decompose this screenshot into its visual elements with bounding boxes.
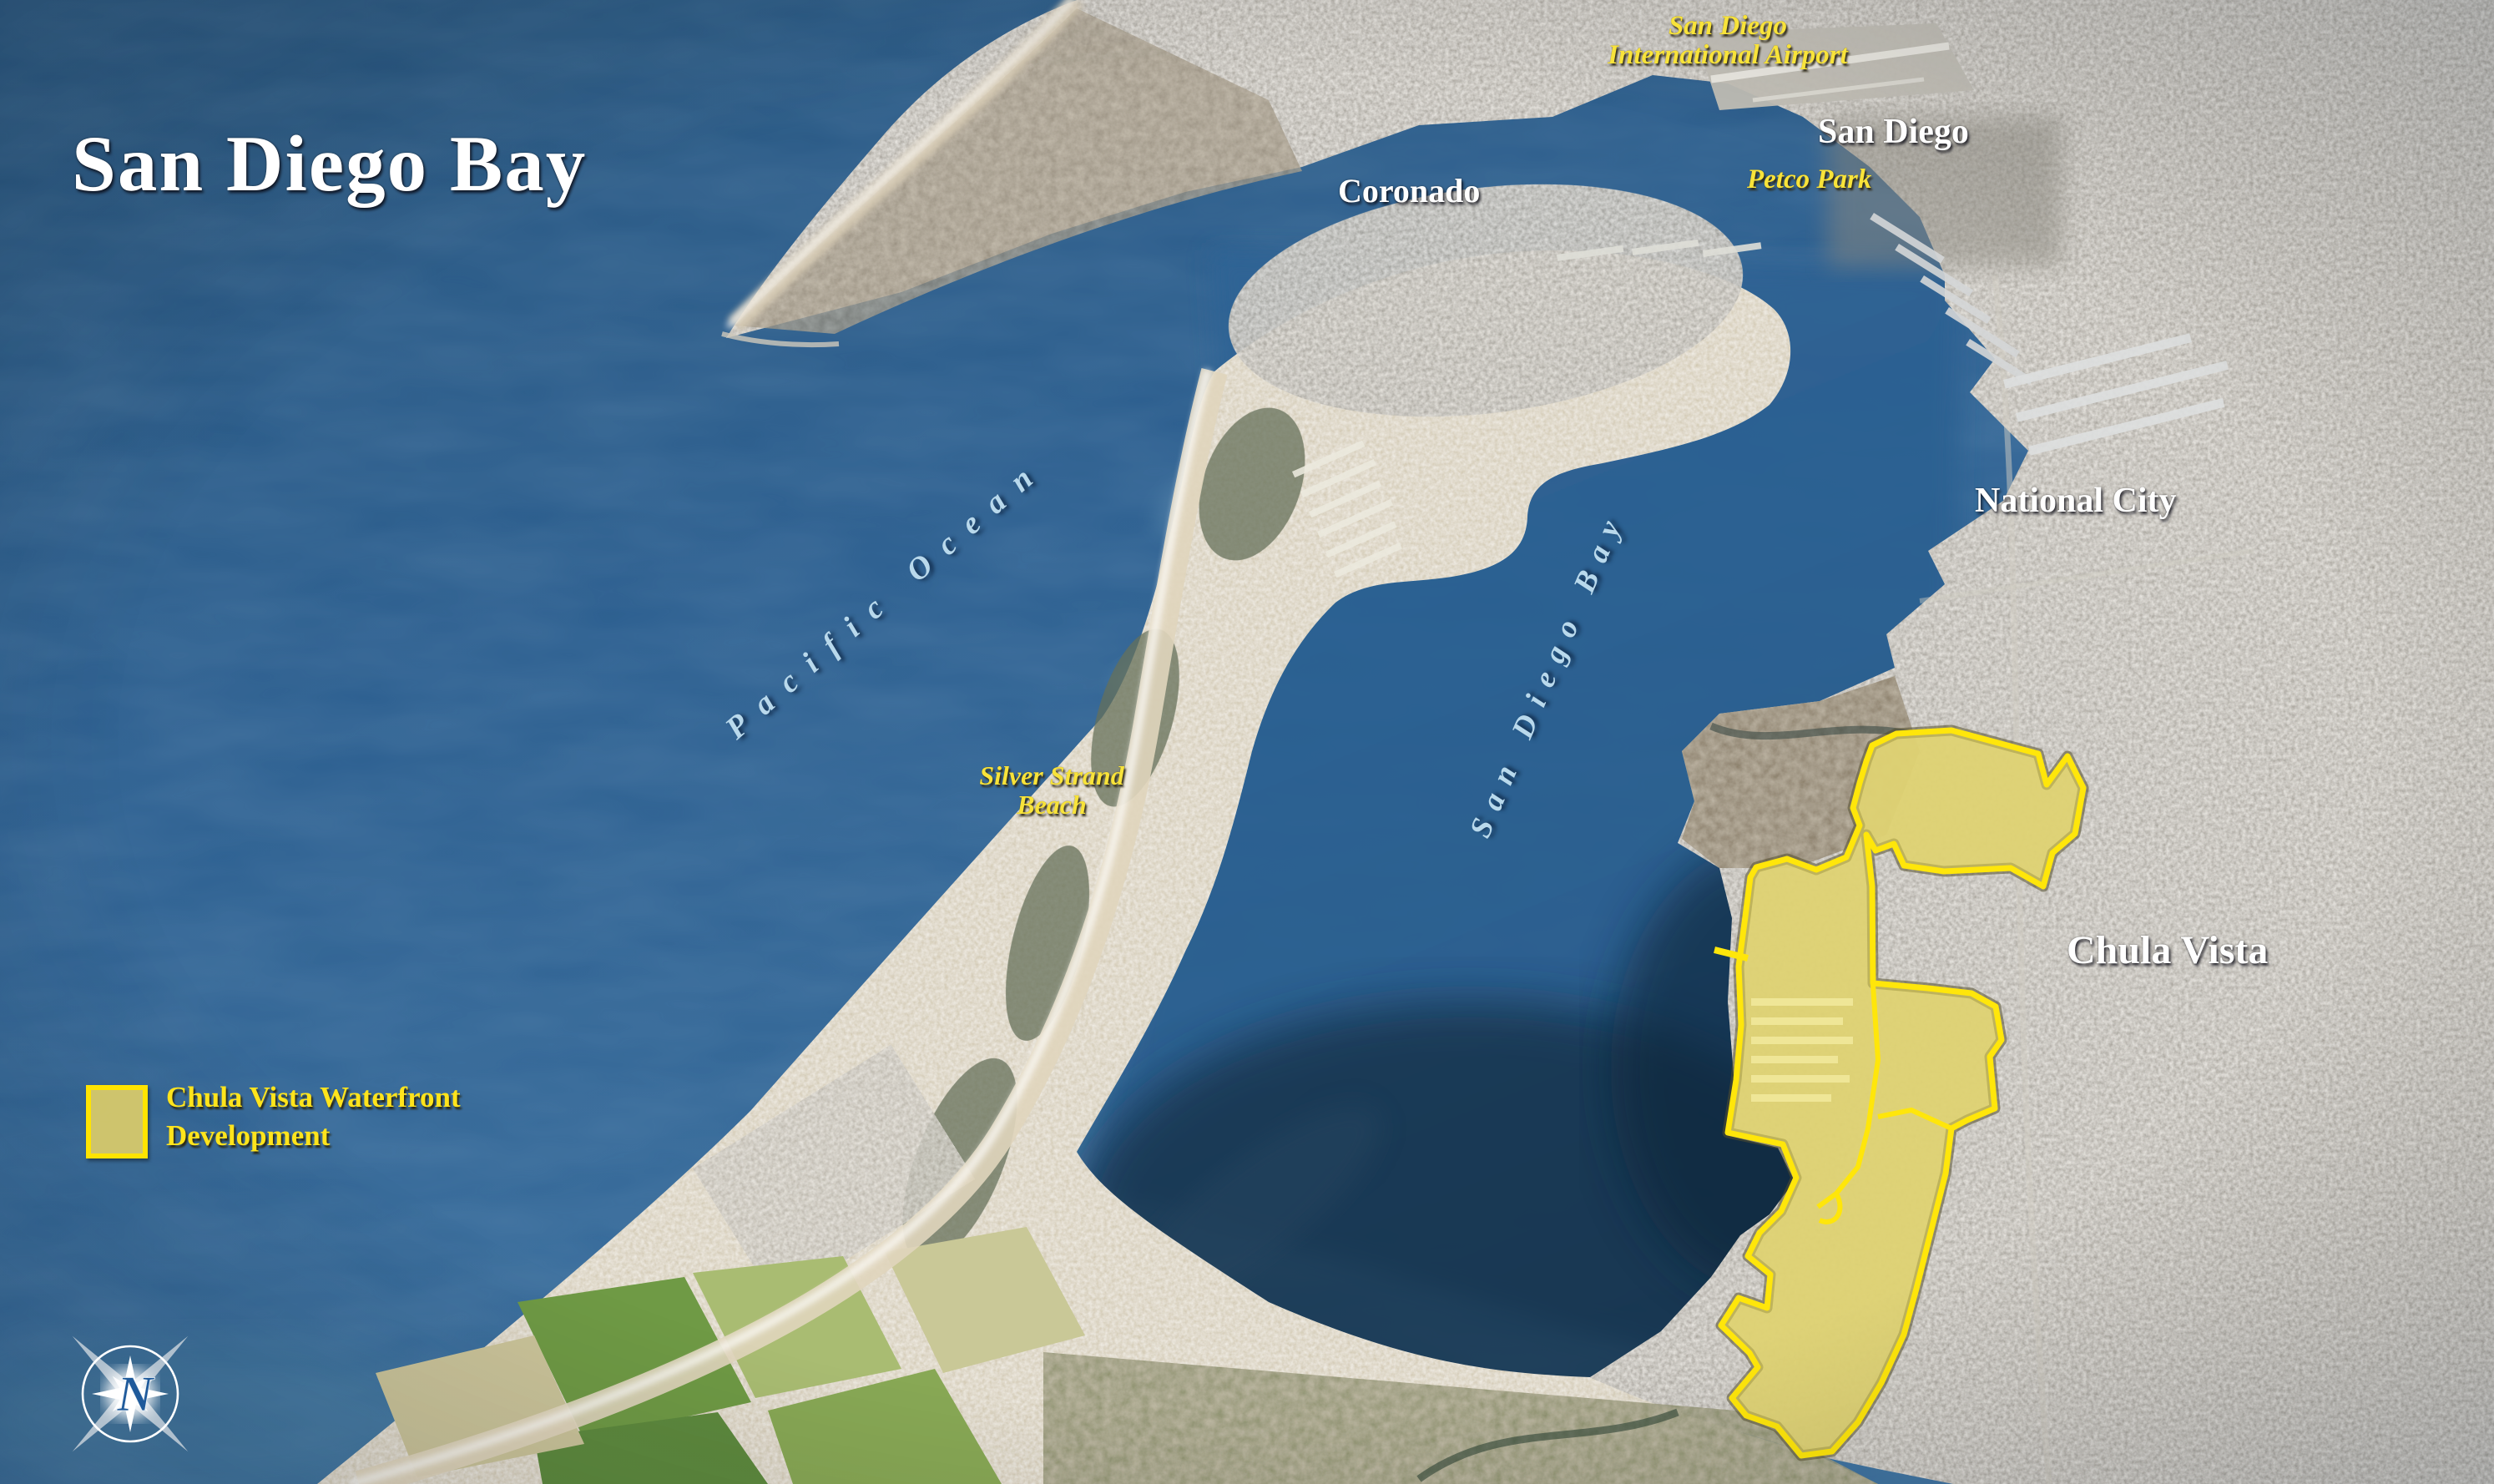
legend-label: Chula Vista Waterfront Development <box>166 1078 461 1154</box>
map-page: San Diego Bay San Diego International Ai… <box>0 0 2494 1484</box>
compass-north-letter: N <box>116 1366 155 1421</box>
silver-strand-label: Silver Strand Beach <box>918 761 1185 820</box>
san-diego-label: San Diego <box>1818 114 1969 151</box>
coronado-label: Coronado <box>1338 174 1480 209</box>
compass-rose: N <box>48 1317 212 1471</box>
map-title: San Diego Bay <box>72 122 587 206</box>
chula-vista-label: Chula Vista <box>2067 930 2268 972</box>
legend-swatch <box>86 1085 148 1158</box>
legend-label-line1: Chula Vista Waterfront <box>166 1078 461 1117</box>
airport-label-line2: International Airport <box>1569 41 1886 70</box>
silver-strand-line2: Beach <box>918 790 1185 820</box>
legend: Chula Vista Waterfront Development <box>86 1078 461 1158</box>
petco-park-label: Petco Park <box>1747 165 1871 194</box>
airport-label: San Diego International Airport <box>1569 12 1886 69</box>
map-canvas <box>0 0 2494 1484</box>
legend-label-line2: Development <box>166 1117 461 1155</box>
national-city-label: National City <box>1975 482 2177 520</box>
silver-strand-line1: Silver Strand <box>918 761 1185 790</box>
airport-label-line1: San Diego <box>1569 12 1886 41</box>
